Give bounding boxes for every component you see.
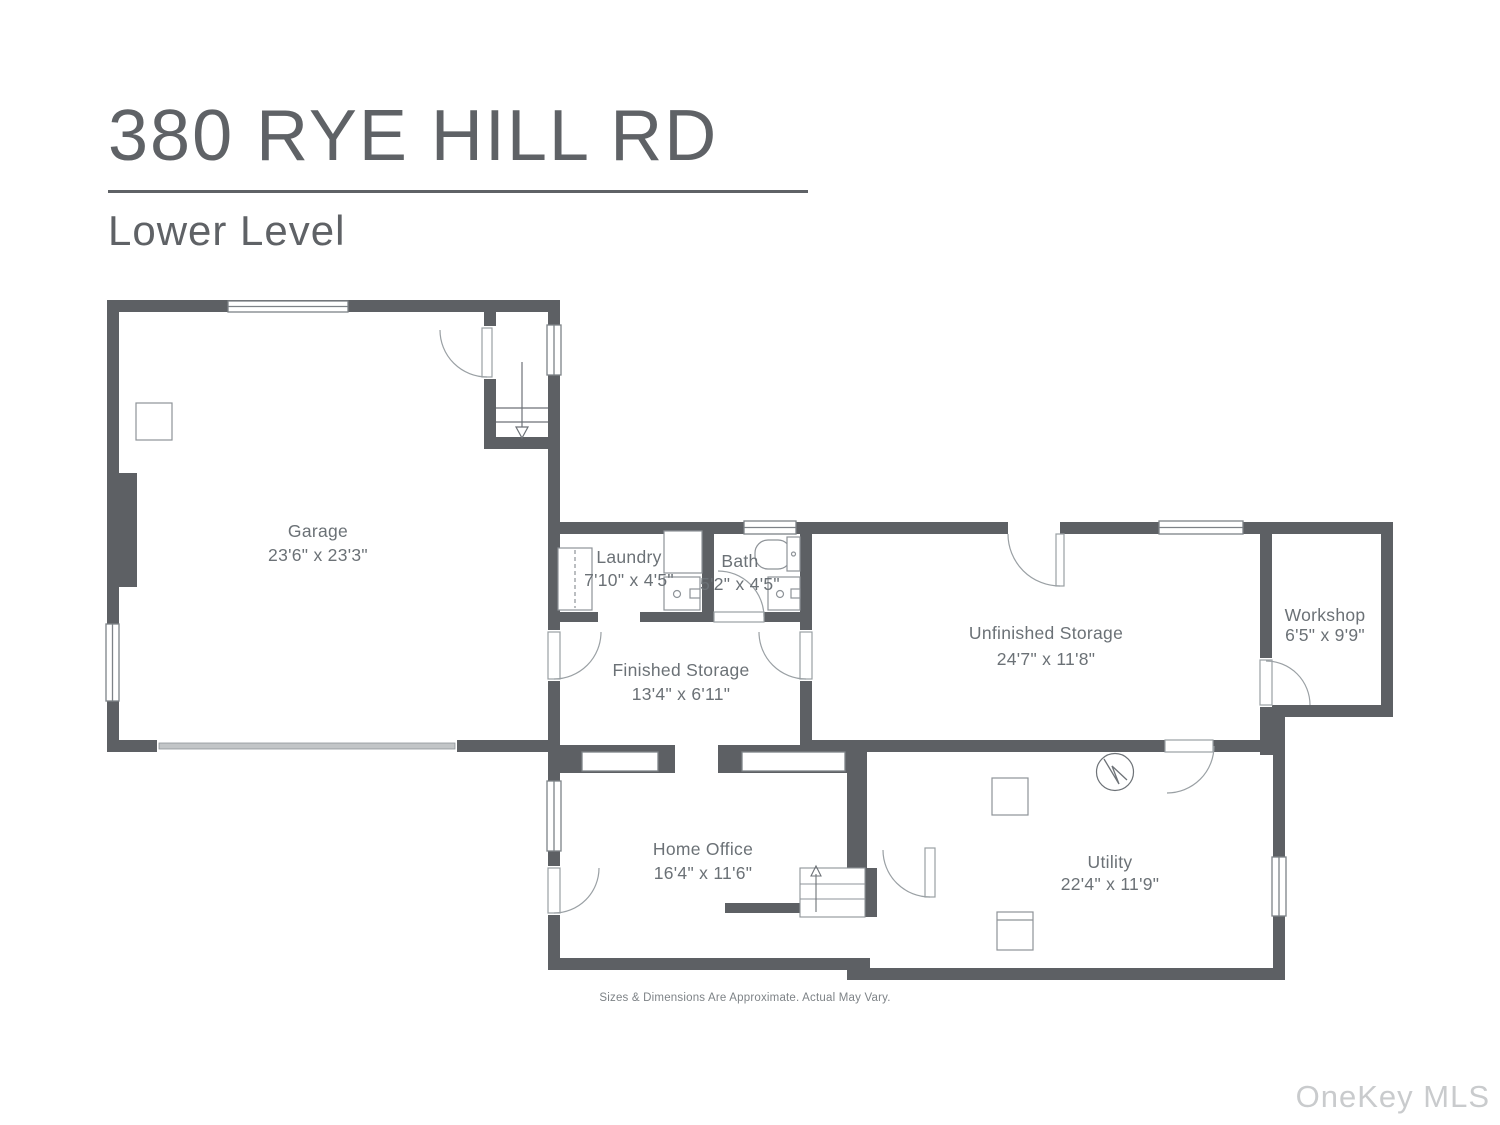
door-utility-stairs: [883, 848, 935, 897]
stairs-down: [496, 362, 548, 438]
door-office-left: [548, 868, 599, 913]
room-dims: 22'4" x 11'9": [1061, 874, 1160, 894]
room-dims: 6'5" x 9'9": [1285, 625, 1365, 645]
room-label-workshop: Workshop 6'5" x 9'9": [1285, 605, 1366, 645]
door-finished-storage-unfinished: [759, 632, 812, 679]
wall-office-left: [548, 745, 560, 970]
window-utility-right: [1272, 857, 1286, 916]
wall-workshop-right: [1381, 522, 1393, 717]
stairs-up: [800, 866, 865, 917]
room-name: Workshop: [1285, 605, 1366, 625]
wall-office-bottom: [548, 958, 870, 970]
room-name: Utility: [1088, 852, 1133, 872]
wall-stairs-right: [865, 868, 877, 917]
window-office-left: [547, 781, 561, 851]
room-name: Bath: [721, 551, 758, 571]
wall-utility-bottom: [847, 968, 1285, 980]
room-label-utility: Utility 22'4" x 11'9": [1061, 852, 1160, 894]
room-dims: 23'6" x 23'3": [268, 545, 368, 565]
utility-appliance-2: [997, 912, 1033, 950]
room-name: Unfinished Storage: [969, 623, 1123, 643]
floor-plan: Garage 23'6" x 23'3" Laundry 7'10" x 4'5…: [0, 0, 1500, 1125]
door-unfinished-storage-top: [1008, 534, 1064, 586]
wall-office-utility-divider: [847, 745, 867, 870]
wall-workshop-bottom: [1260, 705, 1393, 717]
utility-appliance-1: [992, 778, 1028, 815]
window-stairwell: [547, 325, 561, 375]
stairs-down-arrow: [516, 427, 528, 438]
washer: [664, 531, 702, 573]
room-name: Laundry: [596, 547, 661, 567]
room-dims: 5'2" x 4'5": [700, 574, 780, 594]
window-office-interior-1: [582, 752, 658, 771]
room-label-unfinished-storage: Unfinished Storage 24'7" x 11'8": [969, 623, 1123, 669]
room-labels: Garage 23'6" x 23'3" Laundry 7'10" x 4'5…: [268, 521, 1365, 894]
door-garage-stairwell: [440, 328, 492, 377]
room-name: Home Office: [653, 839, 753, 859]
opening-unfinished-storage-top: [1008, 522, 1060, 534]
wall-chimney: [107, 473, 137, 587]
room-label-garage: Garage 23'6" x 23'3": [268, 521, 368, 565]
window-garage-left: [106, 624, 119, 701]
opening-storage-office-doorway: [675, 745, 718, 773]
door-utility-storage: [1165, 740, 1214, 793]
room-label-home-office: Home Office 16'4" x 11'6": [653, 839, 753, 883]
toilet: [755, 537, 800, 571]
room-dims: 24'7" x 11'8": [997, 649, 1096, 669]
door-workshop: [1260, 660, 1310, 705]
window-office-interior-2: [742, 752, 845, 771]
wall-workshop-utility-connector: [1260, 717, 1285, 755]
room-dims: 13'4" x 6'11": [632, 684, 731, 704]
room-name: Finished Storage: [612, 660, 749, 680]
window-bath-top: [744, 521, 796, 534]
window-garage-top: [228, 301, 348, 312]
room-label-finished-storage: Finished Storage 13'4" x 6'11": [612, 660, 749, 704]
electrical-panel-icon: [1097, 754, 1134, 791]
watermark: OneKey MLS: [1296, 1079, 1490, 1115]
window-unfinished-storage-top: [1159, 521, 1243, 534]
garage-column: [136, 403, 172, 440]
disclaimer-text: Sizes & Dimensions Are Approximate. Actu…: [420, 992, 1070, 1004]
room-label-laundry: Laundry 7'10" x 4'5": [584, 547, 674, 590]
wall-stairs-stub: [725, 903, 803, 913]
room-dims: 16'4" x 11'6": [654, 863, 753, 883]
opening-laundry-doorway: [598, 612, 640, 622]
garage-door-panel: [159, 743, 455, 749]
door-finished-storage-garage: [548, 632, 601, 679]
room-dims: 7'10" x 4'5": [584, 570, 674, 590]
room-name: Garage: [288, 521, 348, 541]
